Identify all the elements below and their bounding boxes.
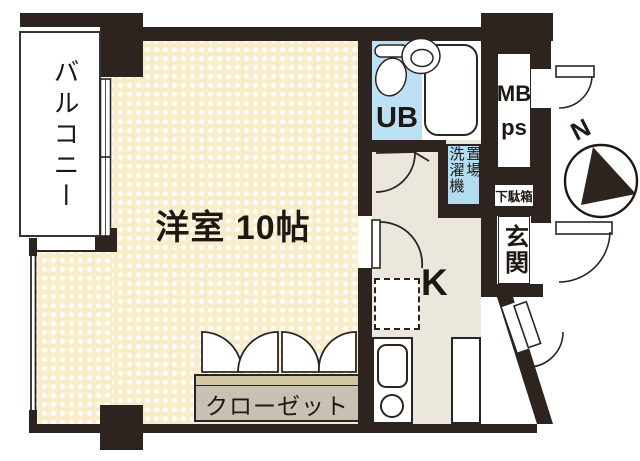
wall (494, 207, 534, 216)
wall (29, 238, 37, 256)
wall (143, 27, 497, 41)
wall (438, 144, 446, 206)
closet-label: クローゼット (196, 387, 358, 420)
closet-trim (196, 376, 358, 386)
entrance-door-opening (531, 223, 551, 284)
wall (358, 140, 446, 152)
meter-box-label: MB (497, 81, 531, 107)
diagonal-wall (497, 297, 563, 424)
entrance-label: 玄関 (497, 224, 532, 276)
main-room-label: 洋室 10帖 (118, 200, 348, 249)
balcony-window (101, 79, 111, 236)
main-room-floor-extension (36, 250, 112, 424)
diagonal-door-leaf (514, 302, 541, 348)
wall (438, 206, 497, 218)
kitchen-burner (380, 394, 404, 418)
wall (358, 41, 372, 216)
diagonal-door-opening (502, 302, 532, 352)
meter-box-door (556, 66, 594, 108)
meter-box-door-opening (531, 69, 551, 108)
refrigerator-space (374, 278, 420, 330)
wall (483, 284, 543, 297)
meter-box-pipe-space: MB ps (497, 53, 531, 168)
shoe-cabinet: 下駄箱 (494, 184, 534, 207)
compass-north-label: N (566, 113, 595, 147)
wall-pillar (100, 405, 143, 450)
entrance-area: 玄関 (498, 216, 530, 284)
kitchen-label: K (421, 262, 448, 304)
washer-label-left: 洗濯機 (447, 146, 464, 194)
closet: クローゼット (194, 374, 360, 422)
wall (481, 13, 553, 41)
shoe-cabinet-label: 下駄箱 (495, 186, 533, 205)
wall (497, 41, 531, 53)
kitchen-sink (377, 344, 408, 388)
pipe-space-label: ps (501, 115, 527, 141)
north-arrow-icon (565, 145, 637, 217)
wall (494, 168, 534, 184)
washing-machine-area: 洗濯機 置場 (446, 144, 481, 206)
wall (29, 410, 37, 424)
washer-label-right: 置場 (464, 146, 481, 178)
wall (531, 108, 551, 223)
kitchen-side-counter (451, 337, 481, 424)
wall (100, 13, 143, 77)
unit-bath-label: UB (372, 102, 422, 135)
floorplan-canvas: UB バルコニー 洗濯機 置場 MB ps 下駄箱 玄関 K (0, 0, 640, 461)
left-window (31, 255, 36, 411)
diagonal-door-arc (528, 332, 563, 367)
bathtub (424, 44, 478, 136)
balcony-label: バルコニー (47, 58, 84, 218)
wall (531, 41, 551, 69)
wall (358, 268, 372, 424)
entrance-door (556, 222, 612, 282)
